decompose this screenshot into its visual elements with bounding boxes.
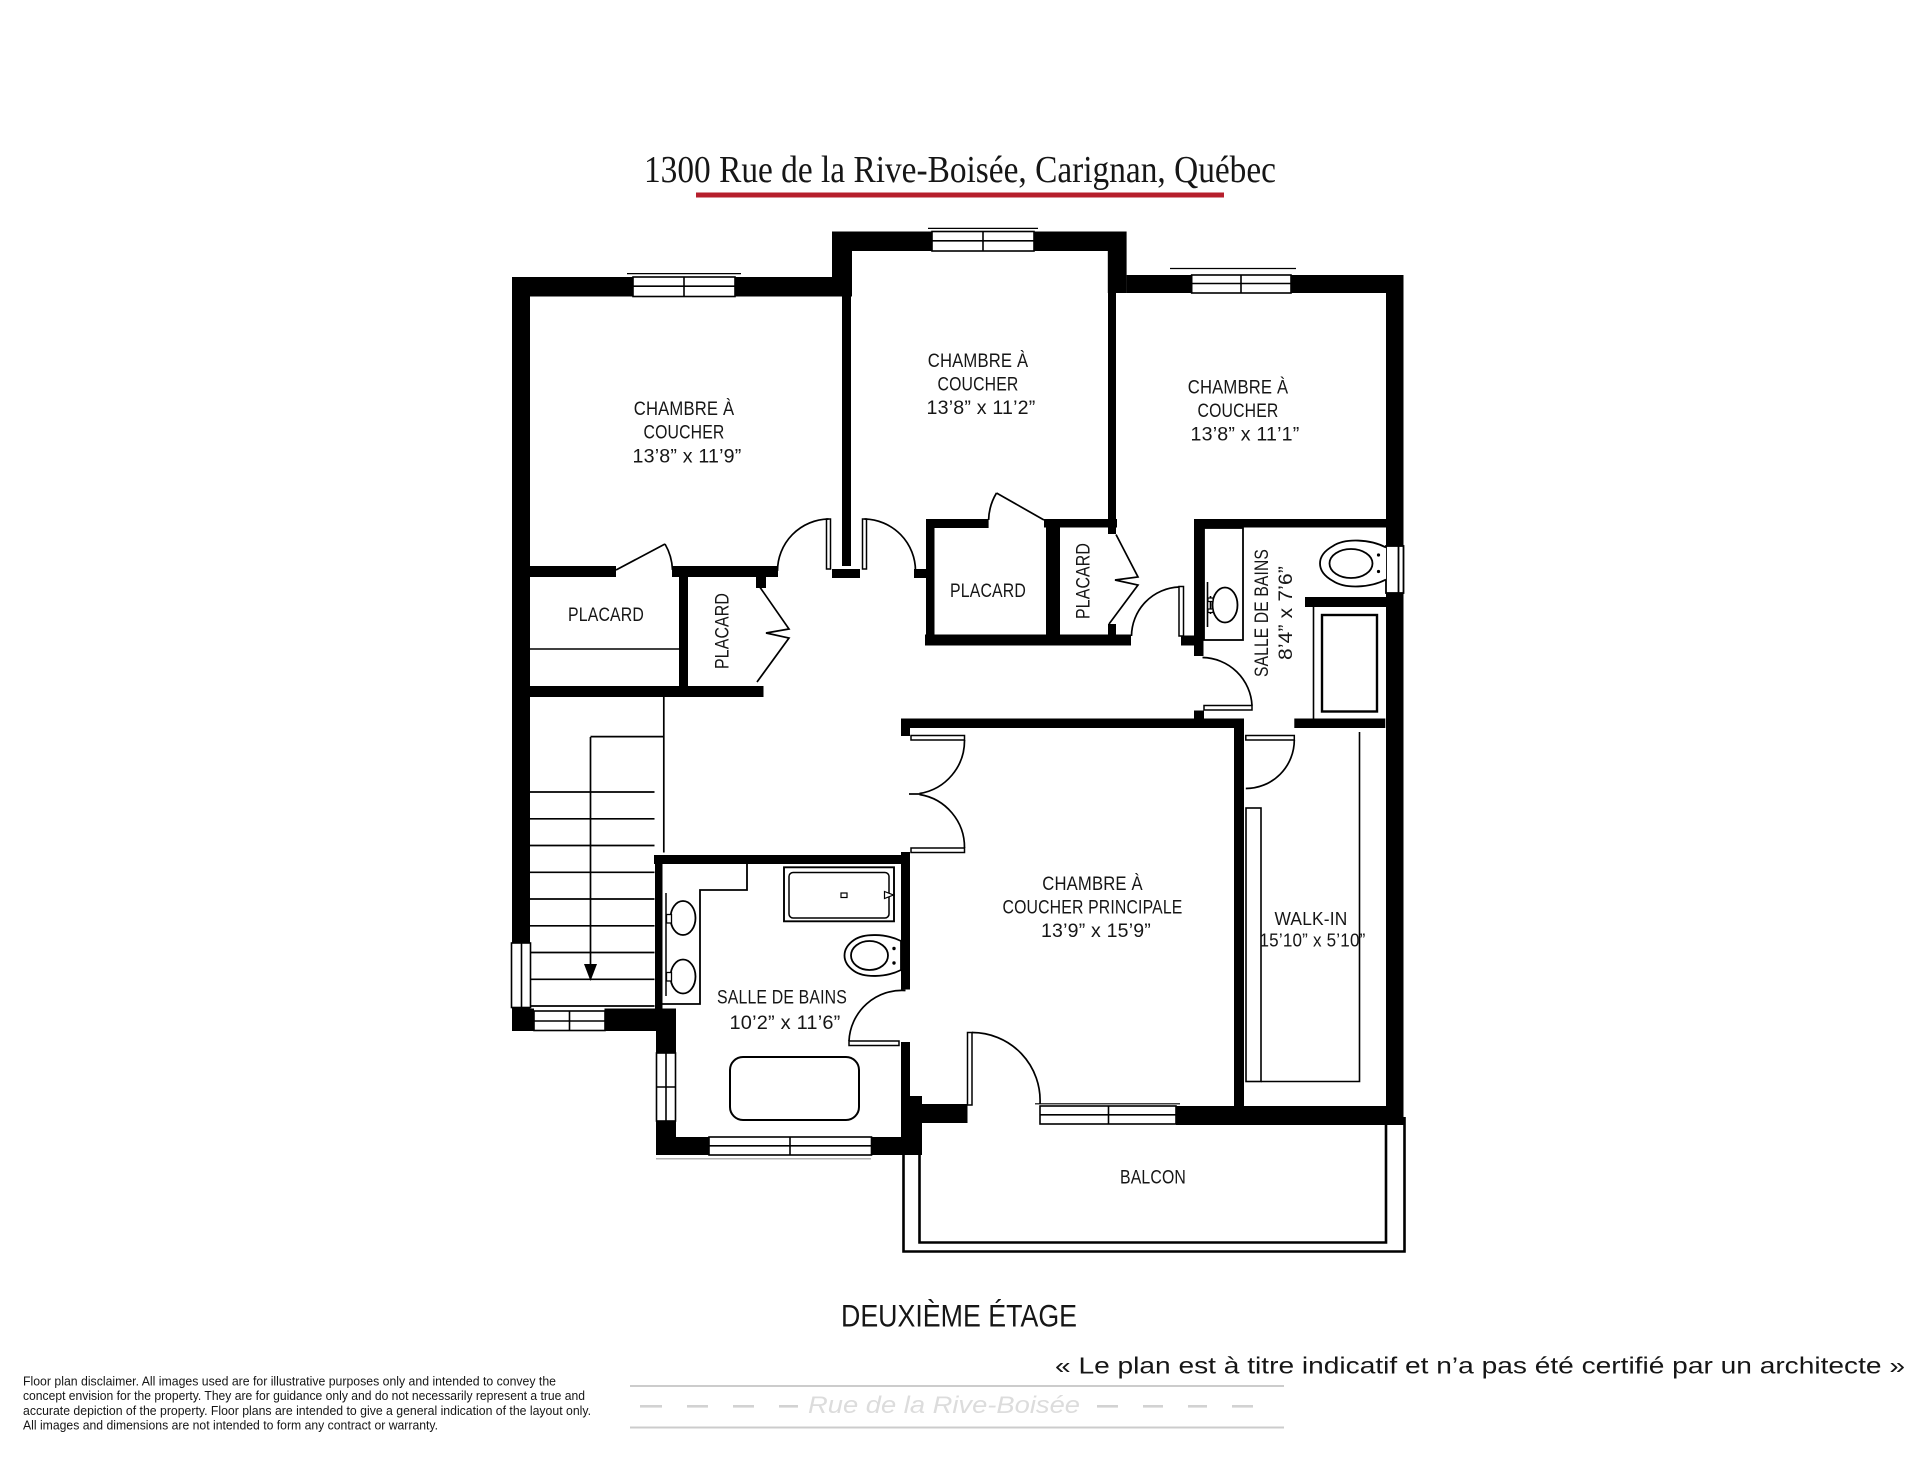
svg-text:PLACARD: PLACARD	[950, 581, 1026, 602]
svg-text:13’8” x 11’9”: 13’8” x 11’9”	[633, 446, 742, 467]
svg-text:Floor plan disclaimer. All ima: Floor plan disclaimer. All images used a…	[23, 1374, 556, 1389]
svg-text:WALK-IN: WALK-IN	[1275, 908, 1348, 929]
svg-text:PLACARD: PLACARD	[1074, 543, 1095, 619]
svg-text:BALCON: BALCON	[1120, 1168, 1186, 1189]
svg-text:13’8” x 11’2”: 13’8” x 11’2”	[927, 398, 1036, 419]
svg-text:COUCHER: COUCHER	[1198, 401, 1279, 422]
svg-text:15’10” x 5’10”: 15’10” x 5’10”	[1260, 930, 1366, 951]
svg-text:SALLE DE BAINS: SALLE DE BAINS	[1252, 549, 1273, 677]
svg-text:CHAMBRE À: CHAMBRE À	[634, 397, 735, 420]
svg-text:accurate depiction of the prop: accurate depiction of the property. Floo…	[23, 1403, 591, 1418]
svg-text:DEUXIÈME ÉTAGE: DEUXIÈME ÉTAGE	[841, 1297, 1077, 1333]
svg-text:CHAMBRE À: CHAMBRE À	[1042, 872, 1143, 895]
svg-text:All images and dimensions are: All images and dimensions are not intend…	[23, 1418, 438, 1433]
svg-text:CHAMBRE À: CHAMBRE À	[928, 349, 1029, 372]
svg-text:13’8” x 11’1”: 13’8” x 11’1”	[1191, 425, 1300, 446]
svg-text:PLACARD: PLACARD	[713, 593, 734, 669]
svg-text:concept envision for the prope: concept envision for the property. They …	[23, 1388, 585, 1403]
svg-text:1300 Rue de la Rive-Boisée, Ca: 1300 Rue de la Rive-Boisée, Carignan, Qu…	[644, 149, 1276, 191]
svg-text:CHAMBRE À: CHAMBRE À	[1188, 376, 1289, 399]
svg-text:Rue de la Rive-Boisée: Rue de la Rive-Boisée	[808, 1392, 1080, 1419]
svg-text:« Le plan est à titre indicati: « Le plan est à titre indicatif et n’a p…	[1055, 1353, 1905, 1379]
svg-text:COUCHER: COUCHER	[644, 423, 725, 444]
svg-text:8’4” x 7’6”: 8’4” x 7’6”	[1276, 566, 1297, 660]
svg-text:COUCHER: COUCHER	[938, 374, 1019, 395]
svg-text:PLACARD: PLACARD	[568, 605, 644, 626]
svg-text:10’2” x 11’6”: 10’2” x 11’6”	[730, 1013, 841, 1034]
svg-text:13’9” x 15’9”: 13’9” x 15’9”	[1041, 921, 1151, 942]
svg-text:SALLE DE BAINS: SALLE DE BAINS	[717, 988, 847, 1009]
svg-text:COUCHER PRINCIPALE: COUCHER PRINCIPALE	[1003, 898, 1183, 919]
